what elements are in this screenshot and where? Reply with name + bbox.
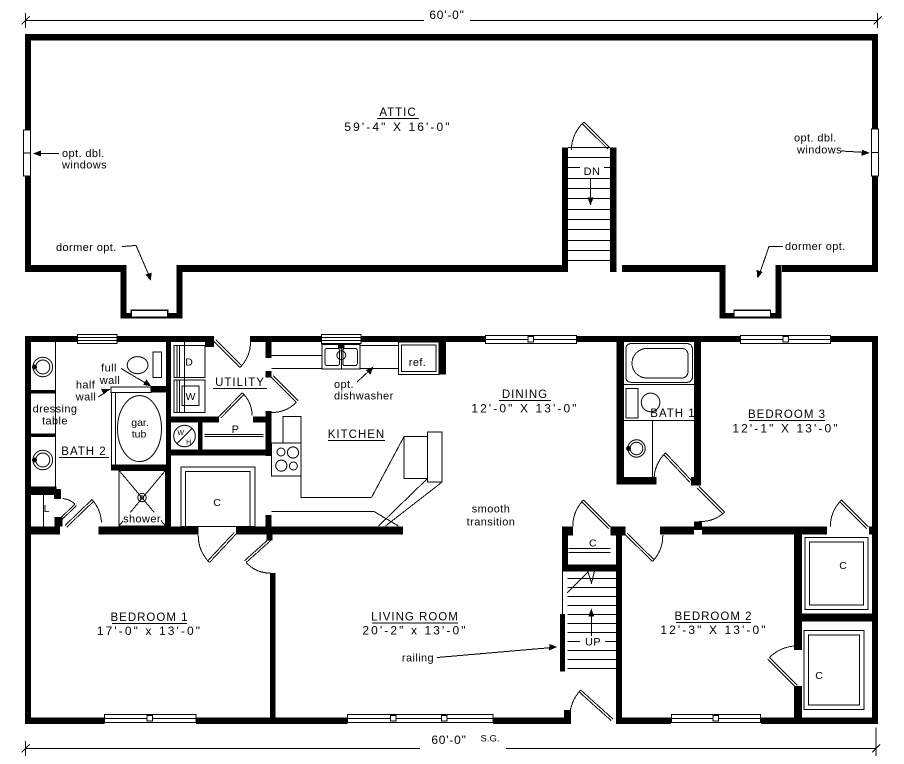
svg-text:half: half xyxy=(76,380,96,392)
svg-text:DN: DN xyxy=(584,166,601,178)
svg-text:C: C xyxy=(839,560,847,572)
svg-text:windows: windows xyxy=(61,160,107,172)
svg-text:dishwasher: dishwasher xyxy=(334,391,394,403)
svg-text:windows: windows xyxy=(796,145,842,157)
svg-text:BEDROOM 2: BEDROOM 2 xyxy=(674,611,752,623)
svg-text:dressing: dressing xyxy=(33,404,78,416)
svg-text:LIVING ROOM: LIVING ROOM xyxy=(371,612,459,624)
svg-text:C: C xyxy=(589,538,597,550)
svg-text:smooth: smooth xyxy=(472,504,510,516)
svg-text:opt. dbl.: opt. dbl. xyxy=(62,148,105,160)
svg-text:12'-0" X 13'-0": 12'-0" X 13'-0" xyxy=(471,402,578,416)
svg-text:17'-0" x 13'-0": 17'-0" x 13'-0" xyxy=(97,624,202,638)
svg-text:DINING: DINING xyxy=(502,389,548,401)
svg-text:60'-0": 60'-0" xyxy=(431,733,466,747)
svg-text:60'-0": 60'-0" xyxy=(429,8,464,22)
svg-text:P: P xyxy=(232,424,240,436)
svg-text:59'-4" X 16'-0": 59'-4" X 16'-0" xyxy=(344,120,451,134)
svg-text:UP: UP xyxy=(585,637,601,649)
svg-text:W: W xyxy=(186,391,196,403)
svg-text:BEDROOM 1: BEDROOM 1 xyxy=(110,612,188,624)
svg-text:shower: shower xyxy=(123,514,161,526)
svg-text:KITCHEN: KITCHEN xyxy=(328,429,385,441)
svg-text:12'-3" X 13'-0": 12'-3" X 13'-0" xyxy=(660,623,767,637)
svg-text:dormer opt.: dormer opt. xyxy=(56,242,117,254)
svg-text:C: C xyxy=(213,497,221,509)
svg-text:ATTIC: ATTIC xyxy=(379,107,416,119)
svg-text:W: W xyxy=(177,430,184,437)
svg-text:gar.: gar. xyxy=(131,417,149,429)
svg-text:table: table xyxy=(42,416,68,428)
svg-text:dormer opt.: dormer opt. xyxy=(785,241,846,253)
svg-text:BEDROOM 3: BEDROOM 3 xyxy=(748,409,826,421)
svg-text:wall: wall xyxy=(75,392,97,404)
svg-text:L: L xyxy=(44,503,50,515)
svg-text:D: D xyxy=(185,357,193,369)
svg-text:full: full xyxy=(101,363,117,375)
svg-text:railing: railing xyxy=(402,653,434,665)
svg-text:ref.: ref. xyxy=(409,357,427,369)
svg-text:BATH 1: BATH 1 xyxy=(650,408,695,420)
svg-text:wall: wall xyxy=(99,375,121,387)
svg-text:UTILITY: UTILITY xyxy=(215,377,265,389)
svg-text:12'-1" X 13'-0": 12'-1" X 13'-0" xyxy=(732,422,839,436)
svg-text:H: H xyxy=(186,439,191,446)
svg-text:BATH 2: BATH 2 xyxy=(61,446,106,458)
svg-text:C: C xyxy=(815,670,823,682)
svg-text:opt. dbl.: opt. dbl. xyxy=(794,133,837,145)
svg-text:S.G.: S.G. xyxy=(480,734,499,745)
svg-text:transition: transition xyxy=(467,517,516,529)
svg-text:opt.: opt. xyxy=(334,379,354,391)
svg-text:20'-2" x 13'-0": 20'-2" x 13'-0" xyxy=(362,624,467,638)
svg-text:tub: tub xyxy=(132,429,147,441)
